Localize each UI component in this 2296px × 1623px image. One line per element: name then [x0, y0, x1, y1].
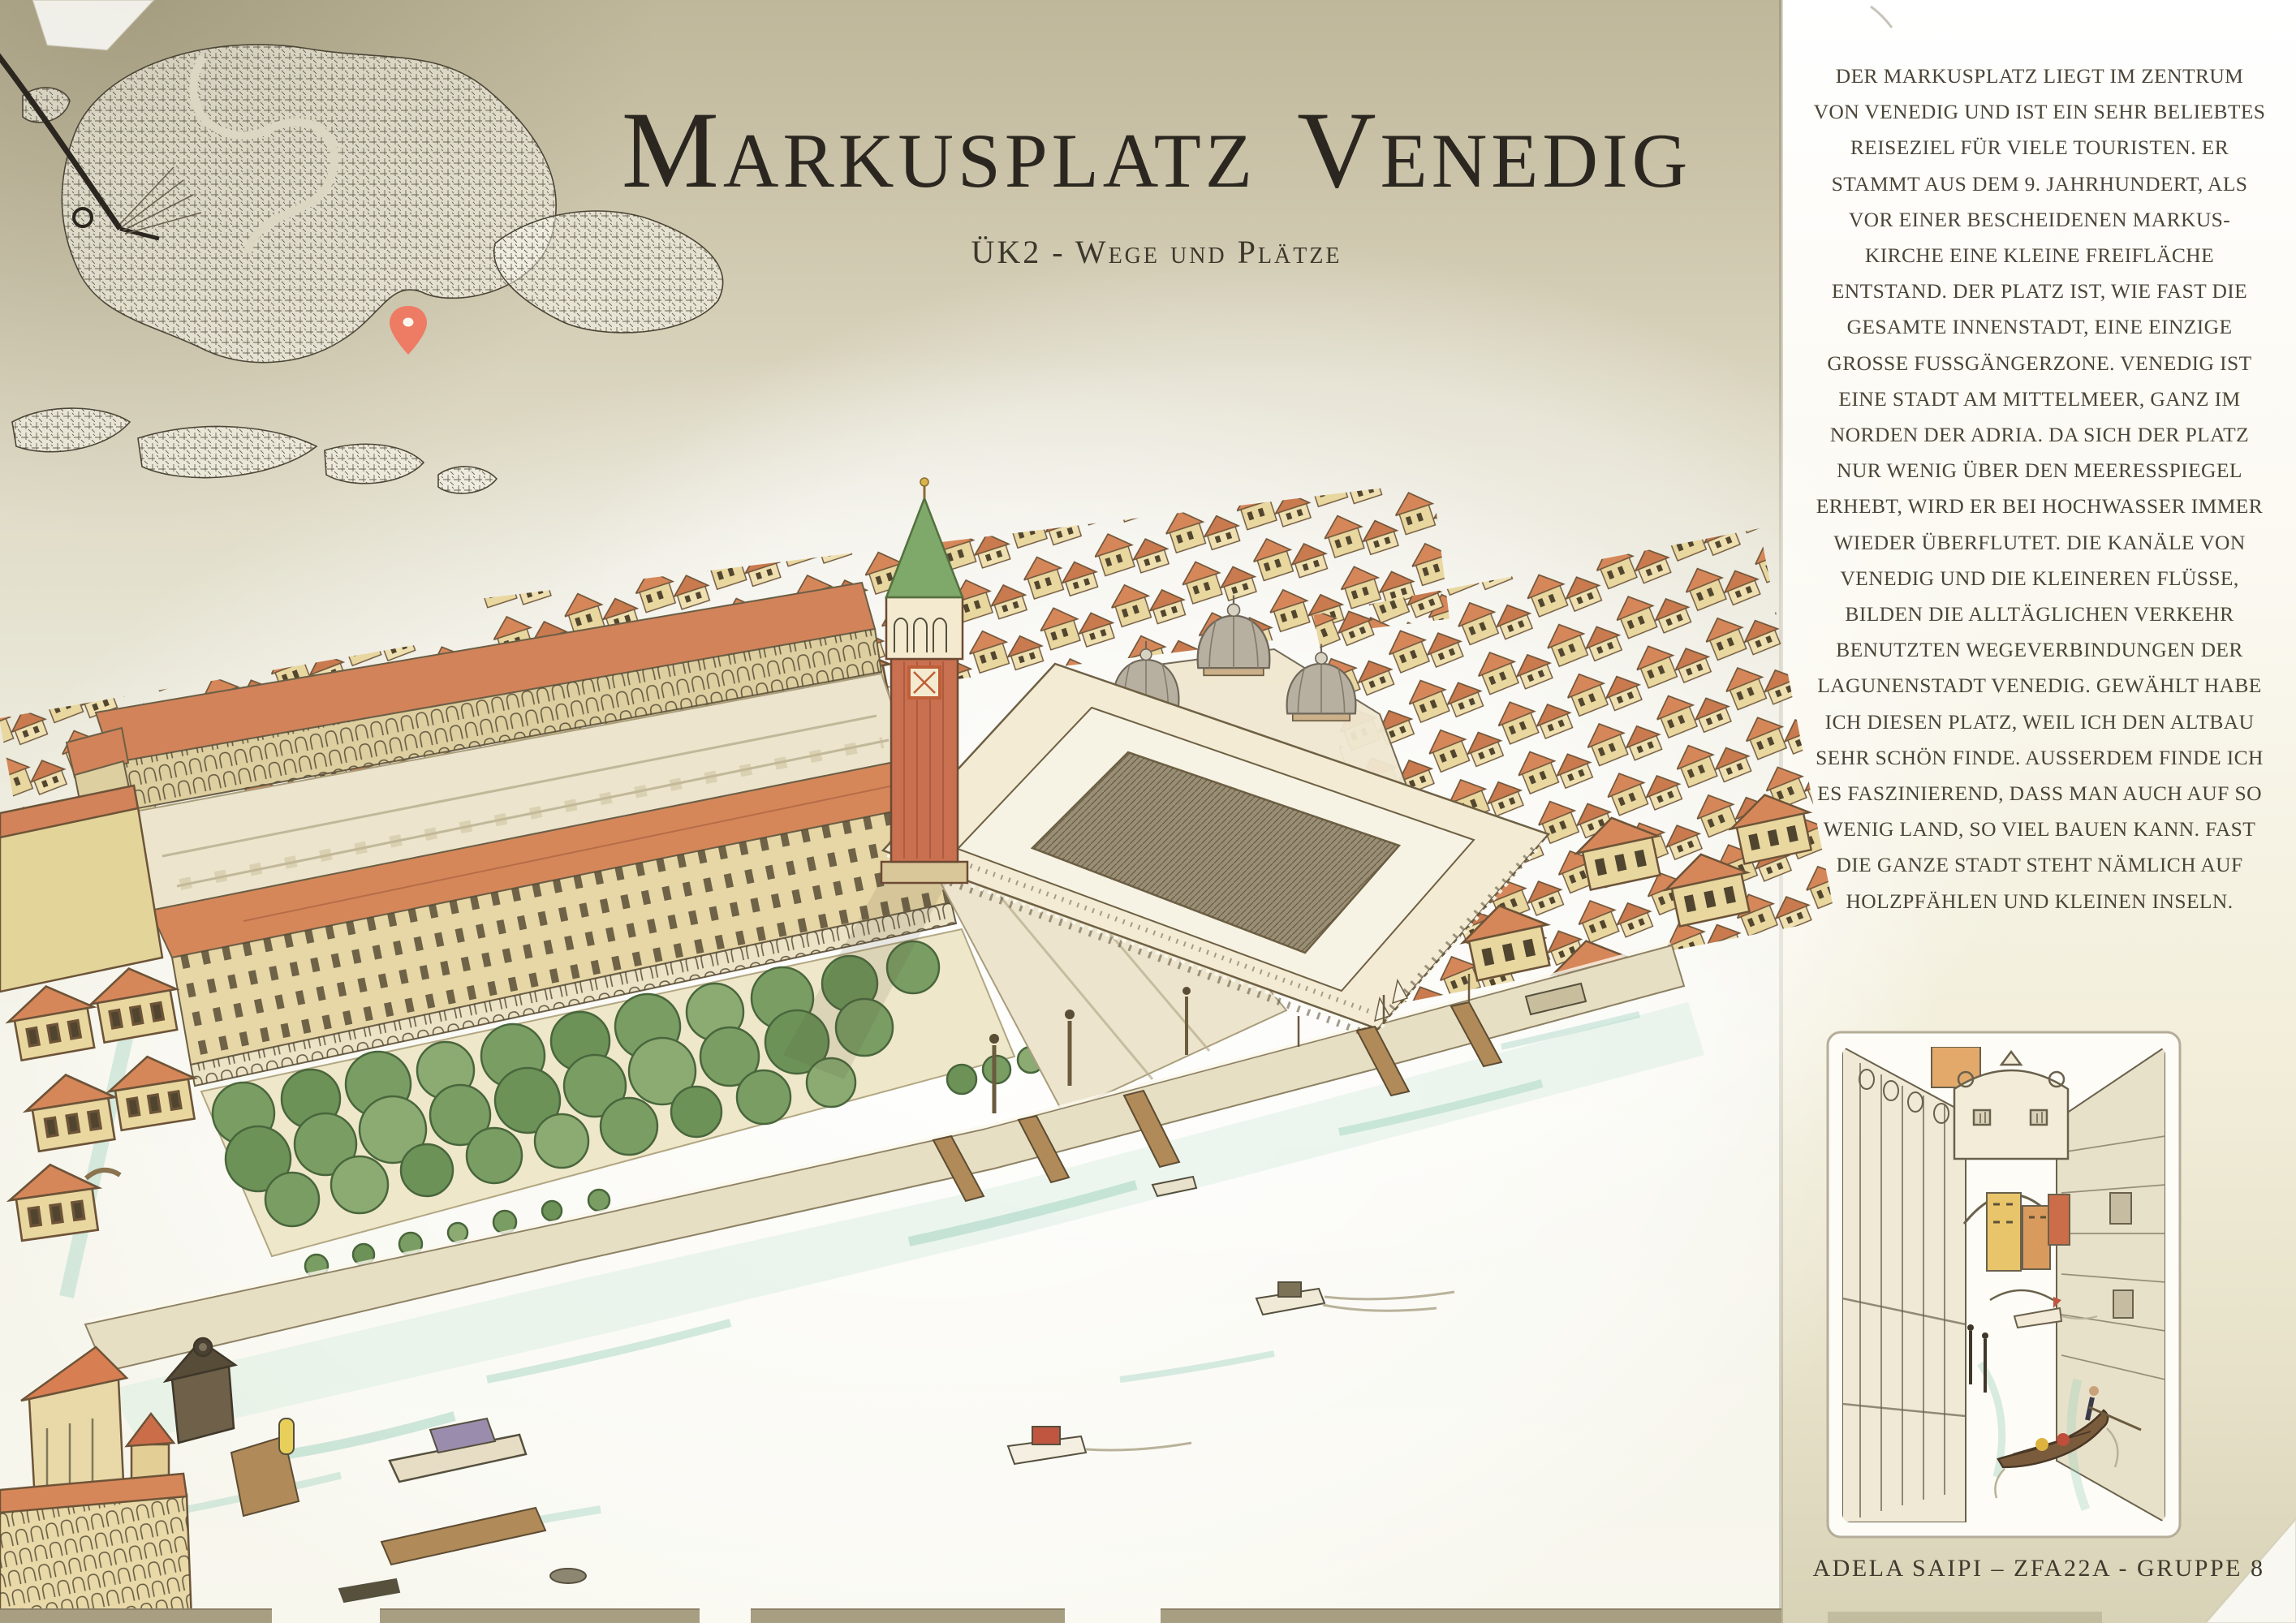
description-line: VOR EINER BESCHEIDENEN MARKUS- [1796, 202, 2283, 238]
description-line: NORDEN DER ADRIA. DA SICH DER PLATZ [1796, 417, 2283, 453]
description-line: EINE STADT AM MITTELMEER, GANZ IM [1796, 381, 2283, 417]
description-line: HOLZPFÄHLEN UND KLEINEN INSELN. [1796, 884, 2283, 919]
yellow-dinghy [279, 1419, 294, 1454]
description-text: DER MARKUSPLATZ LIEGT IM ZENTRUMVON VENE… [1796, 58, 2283, 919]
bridge-of-sighs-inset [1828, 1032, 2180, 1537]
description-line: REISEZIEL FÜR VIELE TOURISTEN. ER [1796, 130, 2283, 166]
description-line: VON VENEDIG UND IST EIN SEHR BELIEBTES [1796, 94, 2283, 130]
description-line: BILDEN DIE ALLTÄGLICHEN VERKEHR [1796, 596, 2283, 632]
description-line: VENEDIG UND DIE KLEINEREN FLÜSSE, [1796, 561, 2283, 596]
description-line: ICH DIESEN PLATZ, WEIL ICH DEN ALTBAU [1796, 704, 2283, 740]
description-line: STAMMT AUS DEM 9. JAHRHUNDERT, ALS [1796, 166, 2283, 202]
loggetta [881, 862, 967, 883]
description-line: GESAMTE INNENSTADT, EINE EINZIGE [1796, 309, 2283, 345]
poster-page: Markusplatz Venedig ÜK2 - Wege und Plätz… [0, 0, 2296, 1623]
description-line: WIEDER ÜBERFLUTET. DIE KANÄLE VON [1796, 525, 2283, 561]
description-line: ES FASZINIEREND, DASS MAN AUCH AUF SO [1796, 776, 2283, 811]
belfry [886, 597, 963, 659]
description-line: DER MARKUSPLATZ LIEGT IM ZENTRUM [1796, 58, 2283, 94]
description-line: BENUTZTEN WEGEVERBINDUNGEN DER [1796, 632, 2283, 668]
description-line: ERHEBT, WIRD ER BEI HOCHWASSER IMMER [1796, 489, 2283, 524]
description-line: WENIG LAND, SO VIEL BAUEN KANN. FAST [1796, 811, 2283, 847]
poster-subtitle: ÜK2 - Wege und Plätze [730, 234, 1583, 271]
description-line: ENTSTAND. DER PLATZ IST, WIE FAST DIE [1796, 273, 2283, 309]
grey-boat [550, 1569, 586, 1583]
description-line: DIE GANZE STADT STEHT NÄMLICH AUF [1796, 847, 2283, 883]
description-line: GROSSE FUSSGÄNGERZONE. VENEDIG IST [1796, 346, 2283, 381]
poster-title: Markusplatz Venedig [528, 96, 1786, 205]
description-line: SEHR SCHÖN FINDE. AUSSERDEM FINDE ICH [1796, 740, 2283, 776]
description-line: NUR WENIG ÜBER DEN MEERESSPIEGEL [1796, 453, 2283, 489]
inset-left-palace [1842, 1047, 1966, 1522]
description-line: LAGUNENSTADT VENEDIG. GEWÄHLT HABE [1796, 668, 2283, 704]
description-line: KIRCHE EINE KLEINE FREIFLÄCHE [1796, 238, 2283, 273]
author-credit: ADELA SAIPI – ZFA22A - GRUPPE 8 [1781, 1555, 2296, 1582]
